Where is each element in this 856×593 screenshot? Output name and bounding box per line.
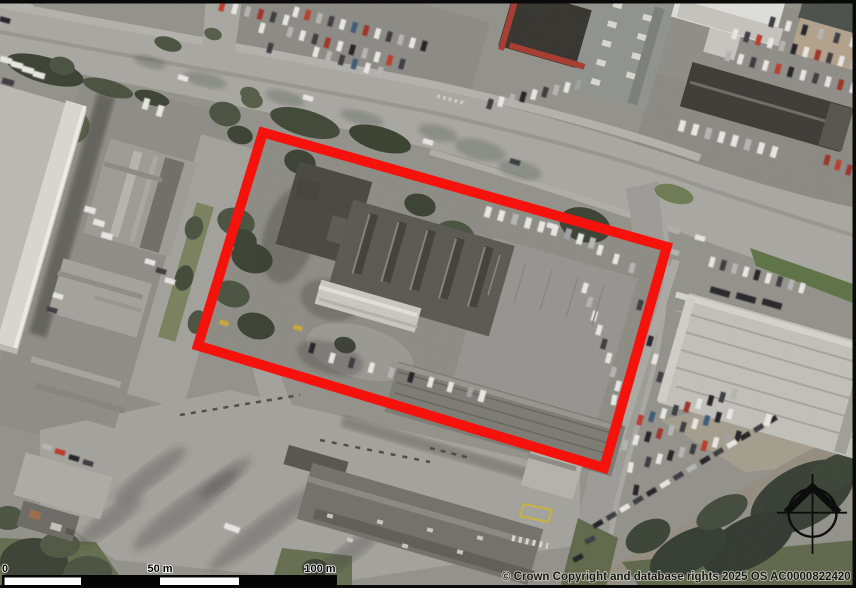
svg-text:© Crown Copyright and database: © Crown Copyright and database rights 20… <box>502 571 851 583</box>
svg-text:0: 0 <box>2 563 8 575</box>
svg-text:100 m: 100 m <box>304 563 335 575</box>
svg-text:50 m: 50 m <box>147 563 172 575</box>
